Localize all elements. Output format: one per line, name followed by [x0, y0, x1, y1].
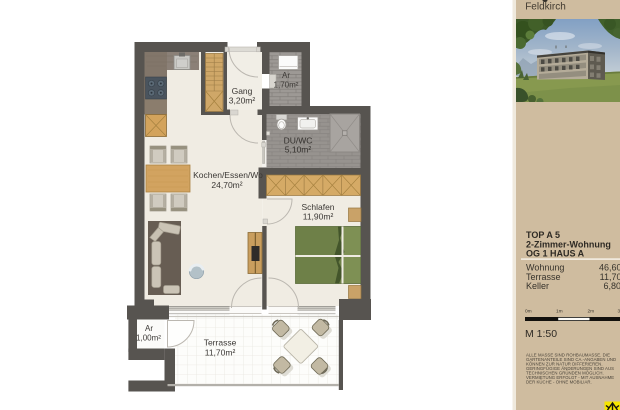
svg-text:24,70m²: 24,70m² [211, 180, 242, 190]
svg-text:Gang: Gang [232, 86, 253, 96]
svg-text:OG 1 HAUS A: OG 1 HAUS A [526, 249, 585, 259]
svg-text:5,10m²: 5,10m² [285, 145, 312, 155]
svg-text:Feldkirch: Feldkirch [525, 1, 566, 12]
svg-text:Ar: Ar [145, 324, 153, 333]
svg-text:11,70m²: 11,70m² [205, 348, 236, 358]
svg-text:M 1:50: M 1:50 [525, 328, 557, 340]
svg-text:1,00m²: 1,00m² [136, 334, 161, 343]
svg-text:11,90m²: 11,90m² [303, 212, 334, 222]
svg-text:Kochen/Essen/Wo: Kochen/Essen/Wo [193, 170, 263, 180]
svg-text:0m: 0m [525, 309, 532, 315]
svg-text:2m: 2m [588, 309, 595, 315]
svg-text:Schlafen: Schlafen [301, 202, 334, 212]
svg-text:Ar: Ar [282, 71, 290, 80]
svg-text:DER KÜCHE - OHNE MOBILIAR.: DER KÜCHE - OHNE MOBILIAR. [526, 380, 592, 385]
svg-text:6,80: 6,80 [603, 281, 620, 291]
svg-text:1m: 1m [556, 309, 563, 315]
svg-text:Keller: Keller [526, 281, 549, 291]
svg-text:Terrasse: Terrasse [204, 338, 237, 348]
svg-text:3,20m²: 3,20m² [229, 96, 256, 106]
svg-text:1,70m²: 1,70m² [274, 81, 299, 90]
